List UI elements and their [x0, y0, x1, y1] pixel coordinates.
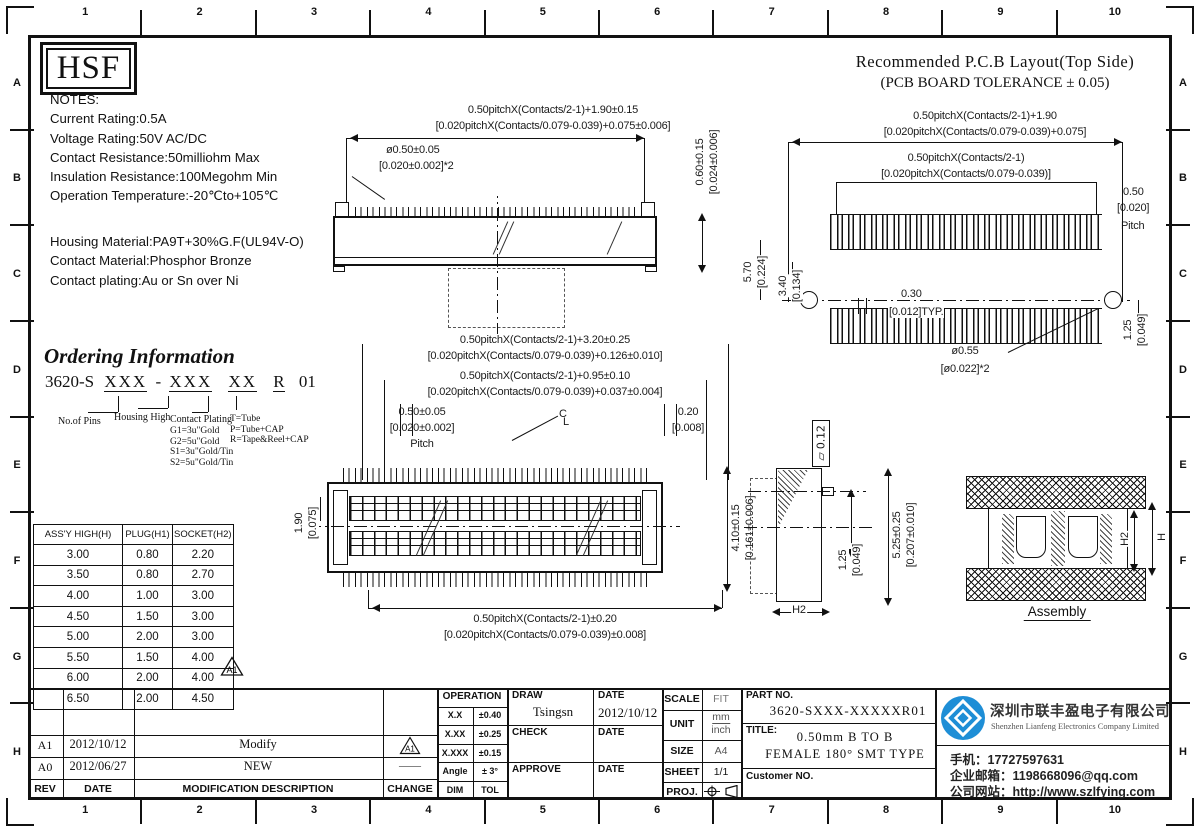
- proj-label: PROJ.: [666, 786, 698, 798]
- leader-line: [118, 396, 119, 412]
- tol-value: ±0.15: [479, 748, 501, 758]
- frame-index-label: 9: [943, 6, 1057, 32]
- title-label: TITLE:: [746, 725, 777, 736]
- note-line: Current Rating:0.5A: [50, 109, 278, 128]
- spec-cell: 4.00: [34, 586, 123, 607]
- part-no-label: PART NO.: [746, 690, 793, 701]
- spec-row: 3.000.802.20: [34, 545, 234, 566]
- titleblock-line: [437, 725, 507, 726]
- spec-cell: 1.50: [123, 647, 173, 668]
- unit-mm: mm: [712, 711, 730, 724]
- unit-label: UNIT: [670, 718, 695, 730]
- date-label: DATE: [598, 727, 624, 738]
- ext-line: [1122, 142, 1123, 302]
- mid-020: 0.20: [677, 406, 700, 418]
- dim-arrow: [698, 265, 706, 277]
- spec-row: 3.500.802.70: [34, 565, 234, 586]
- tol-label: Angle: [442, 766, 467, 776]
- drawing-title-2: FEMALE 180° SMT TYPE: [765, 747, 925, 762]
- pn-packing: R: [273, 372, 284, 392]
- size-value: A4: [715, 745, 728, 757]
- mid-dim: [0.020pitchX(Contacts/0.079-0.039)+0.037…: [427, 386, 664, 398]
- spec-cell: 2.70: [173, 565, 234, 586]
- frame-index-label: 2: [142, 804, 256, 828]
- part-no-value: 3620-SXXX-XXXXXR01: [770, 703, 927, 719]
- spec-cell: 2.00: [123, 689, 173, 710]
- dim-line: [888, 470, 889, 600]
- assembly-label: Assembly: [1024, 604, 1091, 621]
- frame-index-label: B: [1172, 131, 1194, 227]
- tol-value: ±0.40: [479, 710, 501, 720]
- ext-line: [346, 138, 347, 204]
- rev-header: DATE: [84, 783, 112, 795]
- titleblock-line: [662, 782, 741, 783]
- corner-mark: [1192, 798, 1194, 826]
- frame-index-label: 3: [257, 6, 371, 32]
- rev-change: ——: [399, 760, 421, 772]
- dim-arrow: [788, 138, 800, 146]
- mid-pitch: 0.50±0.05: [397, 406, 446, 418]
- approve-label: APPROVE: [512, 764, 561, 775]
- spec-cell: 6.00: [34, 668, 123, 689]
- tol-label: DIM: [447, 785, 464, 795]
- packing-option: R=Tape&Reel+CAP: [230, 435, 309, 446]
- titleblock-line: [702, 688, 703, 800]
- ext-line: [858, 298, 859, 314]
- corner-mark: [6, 6, 8, 34]
- scale-value: FIT: [713, 693, 729, 705]
- ext-line: [728, 344, 729, 480]
- titleblock-line: [935, 688, 937, 800]
- pcb-centerline: [782, 300, 1130, 301]
- pcb-dim-030b: [0.012]TYP.: [888, 306, 944, 318]
- tv-foot: [645, 266, 657, 272]
- frame-index-label: C: [1172, 226, 1194, 322]
- frame-index-label: 10: [1058, 6, 1172, 32]
- ext-line: [866, 298, 867, 314]
- spec-row: 5.501.504.00: [34, 647, 234, 668]
- spec-cell: 2.00: [123, 668, 173, 689]
- pcb-pad-row-top: [830, 214, 1102, 250]
- pcb-hole-right: [1104, 291, 1122, 309]
- frame-index-label: A: [1172, 35, 1194, 131]
- size-label: SIZE: [670, 745, 693, 757]
- frame-index-label: 7: [714, 6, 828, 32]
- note-line: Contact Resistance:50milliohm Max: [50, 148, 278, 167]
- material-line: Housing Material:PA9T+30%G.F(UL94V-O): [50, 232, 304, 251]
- sv-h2-label: H2: [791, 604, 807, 616]
- dim-line: [1134, 512, 1135, 566]
- svg-text:A1: A1: [405, 745, 415, 754]
- frame-index-label: 3: [257, 804, 371, 828]
- fv-bot-dim: 0.50pitchX(Contacts/2-1)±0.20: [472, 613, 617, 625]
- spec-row: 5.002.003.00: [34, 627, 234, 648]
- tol-value: ±0.25: [479, 729, 501, 739]
- ext-line: [400, 404, 401, 436]
- pcb-dim-030: 0.30: [900, 288, 923, 300]
- tol-value: ± 3°: [482, 766, 498, 776]
- packing-option: T=Tube: [230, 414, 309, 425]
- pcb-layout-subtitle: (PCB BOARD TOLERANCE ± 0.05): [881, 75, 1110, 92]
- note-line: Insulation Resistance:100Megohm Min: [50, 167, 278, 186]
- draw-label: DRAW: [512, 690, 543, 701]
- fv-pin-comb-top: [340, 468, 650, 483]
- leader-line: [168, 396, 169, 408]
- sheet-label: SHEET: [664, 766, 699, 778]
- tol-label: X.XX: [445, 729, 466, 739]
- pcb-dim: [0.020pitchX(Contacts/0.079-0.039)]: [880, 168, 1052, 180]
- mid-dim: 0.50pitchX(Contacts/2-1)+0.95±0.10: [459, 370, 631, 382]
- ordering-label-plating: Contact Plating: [170, 414, 232, 425]
- dim-line: [836, 182, 1096, 183]
- ext-line: [1096, 182, 1097, 214]
- company-website: 公司网站：http://www.szlfying.com: [950, 781, 1155, 800]
- asm-slot: [1068, 516, 1098, 558]
- pcb-hole-dim: [ø0.022]*2: [940, 363, 991, 375]
- spec-cell: 4.50: [34, 606, 123, 627]
- asm-post: [1051, 511, 1065, 566]
- leader-line: [138, 408, 168, 409]
- ordering-title: Ordering Information: [44, 344, 235, 369]
- dim-line: [1152, 504, 1153, 570]
- dim-arrow: [822, 608, 834, 616]
- frame-index-label: H: [6, 704, 28, 800]
- plating-option: S1=3u"Gold/Tin: [170, 447, 233, 458]
- leader-line: [208, 396, 209, 412]
- note-line: Voltage Rating:50V AC/DC: [50, 129, 278, 148]
- titleblock-line: [437, 781, 507, 782]
- mid-pitch: Pitch: [409, 438, 434, 450]
- tv-body-line: [335, 257, 655, 258]
- dim-line: [702, 217, 703, 265]
- rev-desc: Modify: [239, 737, 277, 752]
- rev-header: CHANGE: [387, 783, 433, 795]
- frame-index-label: 10: [1058, 804, 1172, 828]
- pcb-dim: [0.020pitchX(Contacts/0.079-0.039)+0.075…: [883, 126, 1087, 138]
- packing-option: P=Tube+CAP: [230, 425, 309, 436]
- frame-index-label: 6: [600, 6, 714, 32]
- draw-date: 2012/10/12: [598, 705, 657, 721]
- frame-index-label: E: [6, 418, 28, 514]
- fv-pin-comb-bottom: [340, 572, 650, 587]
- pcb-dim: 0.50pitchX(Contacts/2-1): [907, 152, 1026, 164]
- material-line: Contact Material:Phosphor Bronze: [50, 251, 304, 270]
- spec-cell: 1.50: [123, 606, 173, 627]
- dim-arrow: [698, 209, 706, 221]
- tol-value: TOL: [481, 785, 499, 795]
- frame-index-label: 9: [943, 804, 1057, 828]
- frame-index-label: 1: [28, 804, 142, 828]
- spec-cell: 2.00: [123, 627, 173, 648]
- frame-top-index: 12345678910: [28, 6, 1172, 32]
- pn-dash: -: [155, 372, 161, 391]
- rev-header: REV: [34, 783, 56, 795]
- asm-post: [1100, 514, 1112, 564]
- tv-foot: [333, 266, 345, 272]
- titleblock-line: [741, 768, 935, 769]
- pn-suffix: 01: [299, 372, 316, 391]
- hsf-logo-text: HSF: [57, 50, 121, 87]
- notes-block: NOTES:Current Rating:0.5AVoltage Rating:…: [50, 90, 278, 206]
- note-line: Operation Temperature:-20℃to+105℃: [50, 186, 278, 205]
- spec-cell: 5.00: [34, 627, 123, 648]
- titleblock-line: [134, 688, 135, 800]
- dim-line: [788, 142, 1122, 143]
- ext-line: [676, 404, 677, 436]
- mid-dim: 0.50pitchX(Contacts/2-1)+3.20±0.25: [459, 334, 631, 346]
- dim-arrow: [884, 464, 892, 476]
- rev-id: A0: [38, 760, 53, 775]
- pn-pins: XXX: [104, 372, 147, 392]
- plating-option: S2=5u"Gold/Tin: [170, 458, 233, 469]
- dim-arrow: [1130, 564, 1138, 576]
- titleblock-line: [437, 744, 507, 745]
- dim-line: [727, 468, 728, 586]
- rev-date: 2012/06/27: [70, 759, 127, 774]
- frame-index-label: 7: [714, 804, 828, 828]
- dim-arrow: [768, 608, 780, 616]
- spec-cell: 4.50: [173, 689, 234, 710]
- dim-line: [346, 138, 644, 139]
- tv-dim: 0.50pitchX(Contacts/2-1)+1.90±0.15: [467, 104, 639, 116]
- titleblock-line: [437, 762, 507, 763]
- ext-line: [384, 380, 385, 480]
- ext-line: [644, 138, 645, 204]
- pcb-hole-dim: ø0.55: [950, 345, 979, 357]
- operation-title: OPERATION: [443, 691, 502, 702]
- corner-mark: [6, 798, 8, 826]
- pn-plating: XX: [228, 372, 257, 392]
- ext-line: [412, 404, 413, 436]
- dim-arrow: [1148, 568, 1156, 580]
- frame-bottom-index: 12345678910: [28, 804, 1172, 828]
- dim-arrow: [884, 598, 892, 610]
- spec-header: SOCKET(H2): [173, 525, 234, 545]
- fv-contact-band-bottom: [349, 531, 641, 556]
- note-line: NOTES:: [50, 90, 278, 109]
- asm-slot: [1016, 516, 1046, 558]
- dim-arrow: [368, 604, 380, 612]
- frame-index-label: F: [6, 513, 28, 609]
- drawing-title-1: 0.50mm B TO B: [797, 730, 894, 745]
- tv-end-post: [641, 202, 655, 217]
- titleblock-line: [63, 688, 64, 800]
- height-spec-table: ASS'Y HIGH(H)PLUG(H1)SOCKET(H2) 3.000.80…: [33, 524, 234, 710]
- dim-arrow: [1148, 498, 1156, 510]
- tv-dim: [0.020pitchX(Contacts/0.079-0.039)+0.075…: [435, 120, 672, 132]
- spec-cell: 0.80: [123, 545, 173, 566]
- spec-cell: 3.00: [173, 606, 234, 627]
- plating-option: G1=3u"Gold: [170, 426, 233, 437]
- fv-end-block: [333, 490, 348, 565]
- plating-option: G2=5u"Gold: [170, 437, 233, 448]
- frame-index-label: 8: [829, 6, 943, 32]
- spec-cell: 2.20: [173, 545, 234, 566]
- dim-arrow: [723, 462, 731, 474]
- ext-line: [706, 380, 707, 480]
- leader-line: [192, 412, 208, 413]
- frame-left-index: ABCDEFGH: [6, 35, 28, 800]
- tv-body: [333, 216, 657, 266]
- fv-centerline: [308, 526, 680, 527]
- frame-index-label: D: [1172, 322, 1194, 418]
- pcb-pitch: 0.50: [1122, 186, 1145, 198]
- rev-id: A1: [38, 738, 53, 753]
- spec-header: ASS'Y HIGH(H): [34, 525, 123, 545]
- dim-arrow: [1130, 506, 1138, 518]
- tv-dim-hole: [0.020±0.002]*2: [378, 160, 455, 172]
- frame-index-label: 6: [600, 804, 714, 828]
- ext-line: [664, 404, 665, 436]
- mid-pitch: [0.020±0.002]: [389, 422, 456, 434]
- dim-arrow: [346, 134, 358, 142]
- tv-hidden-detail: [448, 268, 565, 328]
- draw-name: Tsingsn: [533, 704, 573, 720]
- dim-line: [368, 608, 722, 609]
- titleblock-line: [507, 762, 662, 763]
- titleblock-line: [28, 757, 437, 758]
- frame-index-label: C: [6, 226, 28, 322]
- titleblock-line: [507, 688, 509, 800]
- date-label: DATE: [598, 764, 624, 775]
- customer-no-label: Customer NO.: [746, 771, 813, 782]
- asm-post: [1002, 514, 1014, 564]
- spec-cell: 3.00: [34, 545, 123, 566]
- tv-end-post: [335, 202, 349, 217]
- spec-row: 4.001.003.00: [34, 586, 234, 607]
- ext-line: [836, 182, 837, 214]
- corner-mark: [1192, 6, 1194, 34]
- asm-pcb-top: [966, 476, 1146, 509]
- frame-index-label: 4: [371, 6, 485, 32]
- dim-arrow: [723, 584, 731, 596]
- titleblock-line: [662, 762, 741, 763]
- unit-inch: inch: [711, 724, 730, 736]
- titleblock-line: [593, 688, 594, 800]
- ordering-packing-options: T=TubeP=Tube+CAPR=Tape&Reel+CAP: [230, 414, 309, 446]
- company-name: 深圳市联丰盈电子有限公司: [990, 700, 1170, 721]
- rev-header: MODIFICATION DESCRIPTION: [183, 783, 334, 795]
- pcb-dim: 0.50pitchX(Contacts/2-1)+1.90: [912, 110, 1058, 122]
- frame-index-label: G: [6, 609, 28, 705]
- drawing-sheet: 12345678910 12345678910 ABCDEFGH ABCDEFG…: [0, 0, 1200, 832]
- rev-change-marker: A1: [399, 736, 421, 755]
- sheet-value: 1/1: [714, 766, 729, 778]
- rev-date: 2012/10/12: [70, 737, 127, 752]
- titleblock-line: [935, 745, 1172, 746]
- ordering-label-housing: Housing High: [114, 412, 170, 423]
- pcb-pitch: Pitch: [1120, 220, 1145, 232]
- titleblock-line: [28, 735, 437, 736]
- spec-cell: 6.50: [34, 689, 123, 710]
- fv-bot-dim: [0.020pitchX(Contacts/0.079-0.039)±0.008…: [443, 629, 647, 641]
- tv-dim-hole: ø0.50±0.05: [385, 144, 441, 156]
- scale-label: SCALE: [664, 693, 700, 705]
- revision-marker-a1: A1: [220, 656, 244, 677]
- spec-cell: 3.00: [173, 586, 234, 607]
- tol-label: X.XXX: [442, 748, 469, 758]
- frame-index-label: H: [1172, 704, 1194, 800]
- titleblock-line: [741, 688, 743, 800]
- ordering-plating-options: G1=3u"GoldG2=5u"GoldS1=3u"Gold/TinS2=5u"…: [170, 426, 233, 468]
- svg-text:A1: A1: [226, 665, 237, 675]
- check-label: CHECK: [512, 727, 548, 738]
- frame-index-label: 5: [486, 804, 600, 828]
- frame-index-label: 1: [28, 6, 142, 32]
- centerline-symbol: L: [562, 416, 570, 428]
- frame-index-label: B: [6, 131, 28, 227]
- pcb-layout-title: Recommended P.C.B Layout(Top Side): [856, 52, 1134, 72]
- frame-index-label: E: [1172, 418, 1194, 514]
- frame-index-label: 5: [486, 6, 600, 32]
- dim-arrow: [847, 485, 855, 497]
- tol-label: X.X: [448, 710, 463, 720]
- frame-index-label: 2: [142, 6, 256, 32]
- pn-housing: XXX: [169, 372, 212, 392]
- tv-centerline: [497, 196, 498, 336]
- dim-arrow: [636, 134, 648, 142]
- titleblock-line: [383, 688, 384, 800]
- spec-row: 6.002.004.00: [34, 668, 234, 689]
- asm-pcb-bottom: [966, 568, 1146, 601]
- titleblock-line: [28, 779, 437, 780]
- frame-index-label: F: [1172, 513, 1194, 609]
- frame-index-label: 4: [371, 804, 485, 828]
- titleblock-line: [741, 723, 935, 724]
- frame-right-index: ABCDEFGH: [1172, 35, 1194, 800]
- ordering-part-number: 3620-S XXX - XXX XX R 01: [45, 372, 316, 392]
- titleblock-line: [437, 707, 507, 708]
- sv-centerline: [744, 527, 874, 528]
- ext-line: [362, 344, 363, 480]
- spec-row: 4.501.503.00: [34, 606, 234, 627]
- sv-hidden-half: [750, 478, 778, 594]
- frame-index-label: D: [6, 322, 28, 418]
- titleblock-line: [662, 740, 741, 741]
- dim-arrow: [714, 604, 726, 612]
- frame-index-label: 8: [829, 804, 943, 828]
- hsf-logo-box: HSF: [40, 42, 137, 95]
- spec-cell: 1.00: [123, 586, 173, 607]
- rev-desc: NEW: [244, 759, 272, 774]
- titleblock-line: [473, 707, 474, 800]
- projection-symbol-icon: [704, 785, 740, 798]
- company-logo-icon: [940, 695, 986, 741]
- leader-line: [236, 396, 237, 410]
- titleblock-line: [507, 725, 662, 726]
- pn-prefix: 3620-S: [45, 372, 94, 391]
- spec-cell: 3.00: [173, 627, 234, 648]
- frame-index-label: G: [1172, 609, 1194, 705]
- spec-cell: 3.50: [34, 565, 123, 586]
- mid-dim: [0.020pitchX(Contacts/0.079-0.039)+0.126…: [427, 350, 664, 362]
- spec-header: PLUG(H1): [123, 525, 173, 545]
- spec-cell: 5.50: [34, 647, 123, 668]
- materials-block: Housing Material:PA9T+30%G.F(UL94V-O)Con…: [50, 232, 304, 290]
- frame-index-label: A: [6, 35, 28, 131]
- date-label: DATE: [598, 690, 624, 701]
- dim-line: [320, 497, 321, 521]
- material-line: Contact plating:Au or Sn over Ni: [50, 271, 304, 290]
- fv-end-block: [642, 490, 657, 565]
- spec-cell: 0.80: [123, 565, 173, 586]
- dim-arrow: [1114, 138, 1126, 146]
- company-name-en: Shenzhen Lianfeng Electronics Company Li…: [991, 722, 1159, 731]
- ordering-label-pins: No.of Pins: [58, 416, 101, 427]
